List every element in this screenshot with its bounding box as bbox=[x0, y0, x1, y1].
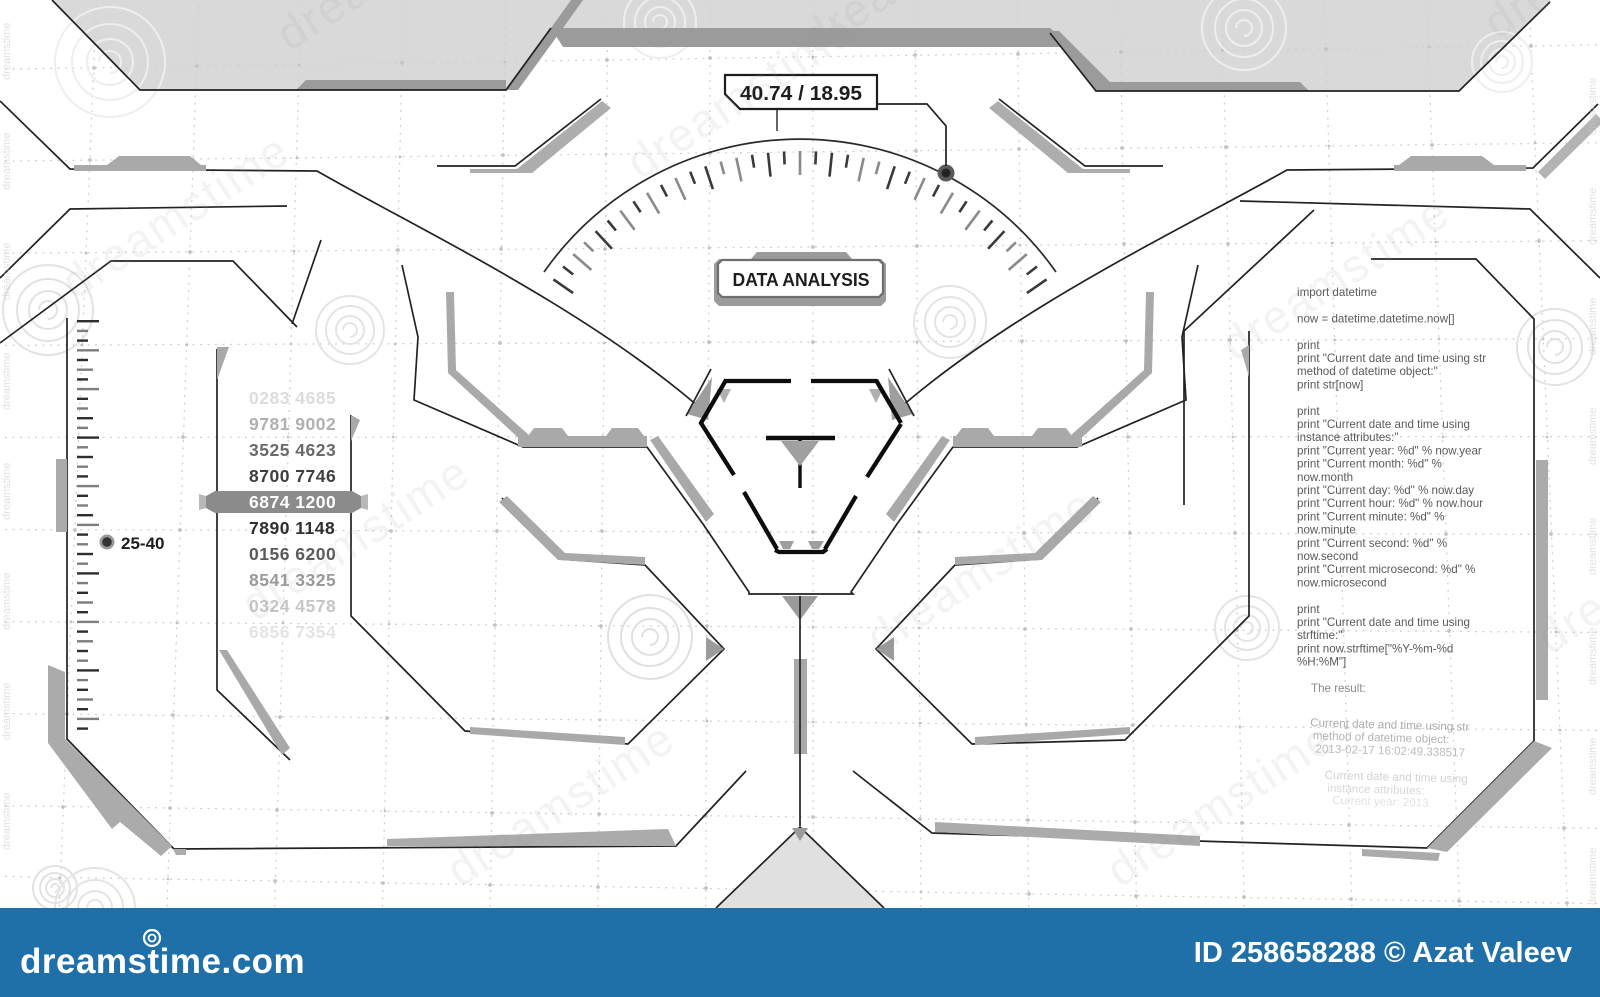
svg-text:print "Current day: %d" % now.: print "Current day: %d" % now.day bbox=[1297, 484, 1474, 497]
svg-text:print str[now]: print str[now] bbox=[1297, 378, 1363, 391]
svg-text:dreamstime: dreamstime bbox=[1, 353, 13, 410]
svg-text:now.microsecond: now.microsecond bbox=[1297, 576, 1387, 589]
svg-text:dreamstime: dreamstime bbox=[1, 243, 13, 300]
svg-text:print "Current minute: %d" %: print "Current minute: %d" % bbox=[1297, 510, 1444, 523]
svg-text:dreamstime: dreamstime bbox=[1587, 848, 1599, 905]
svg-text:print: print bbox=[1297, 339, 1320, 352]
svg-text:now.month: now.month bbox=[1297, 471, 1353, 484]
svg-text:print "Current date and time u: print "Current date and time using str bbox=[1297, 352, 1486, 365]
svg-text:strftime:": strftime:" bbox=[1297, 629, 1342, 642]
svg-text:dreamstime: dreamstime bbox=[1, 463, 13, 520]
svg-text:print: print bbox=[1297, 405, 1320, 418]
svg-text:6874 1200: 6874 1200 bbox=[249, 492, 336, 512]
svg-text:dreamstime: dreamstime bbox=[1, 793, 13, 850]
svg-text:dreamstime: dreamstime bbox=[1587, 518, 1599, 575]
svg-text:print "Current year: %d" % now: print "Current year: %d" % now.year bbox=[1297, 444, 1482, 457]
svg-text:DATA ANALYSIS: DATA ANALYSIS bbox=[733, 270, 870, 290]
svg-text:dreamstime: dreamstime bbox=[1587, 628, 1599, 685]
svg-text:dreamstime: dreamstime bbox=[1587, 78, 1599, 135]
svg-text:instance attributes:": instance attributes:" bbox=[1297, 431, 1398, 444]
svg-text:print "Current date and time u: print "Current date and time using bbox=[1297, 418, 1470, 431]
svg-text:print: print bbox=[1297, 603, 1320, 616]
svg-text:9781 9002: 9781 9002 bbox=[249, 414, 336, 434]
svg-text:dreamstime: dreamstime bbox=[1587, 188, 1599, 245]
svg-text:dreamstime: dreamstime bbox=[1587, 408, 1599, 465]
svg-text:dreamstime: dreamstime bbox=[1, 683, 13, 740]
svg-text:Current year: 2013: Current year: 2013 bbox=[1332, 794, 1429, 810]
svg-text:8700 7746: 8700 7746 bbox=[249, 466, 336, 486]
svg-text:print "Current date and time u: print "Current date and time using bbox=[1297, 616, 1470, 629]
svg-text:print "Current hour: %d" % now: print "Current hour: %d" % now.hour bbox=[1297, 497, 1483, 510]
svg-text:dreamstime: dreamstime bbox=[1, 133, 13, 190]
svg-text:dreamstime: dreamstime bbox=[1, 23, 13, 80]
svg-text:print "Current second: %d" %: print "Current second: %d" % bbox=[1297, 537, 1447, 550]
svg-text:method of datetime object:": method of datetime object:" bbox=[1297, 365, 1438, 378]
svg-text:The result:: The result: bbox=[1311, 682, 1366, 695]
svg-text:ID 258658288 © Azat Valeev: ID 258658288 © Azat Valeev bbox=[1194, 937, 1572, 969]
svg-text:now.second: now.second bbox=[1297, 550, 1358, 563]
svg-text:25-40: 25-40 bbox=[121, 534, 164, 553]
svg-text:now.minute: now.minute bbox=[1297, 524, 1356, 537]
svg-text:dreamstime.com: dreamstime.com bbox=[20, 942, 305, 981]
svg-text:print "Current month: %d" %: print "Current month: %d" % bbox=[1297, 458, 1442, 471]
svg-text:3525 4623: 3525 4623 bbox=[249, 440, 336, 460]
svg-text:%H:%M"]: %H:%M"] bbox=[1297, 656, 1346, 669]
svg-text:print now.strftime["%Y-%m-%d: print now.strftime["%Y-%m-%d bbox=[1297, 642, 1453, 655]
svg-text:0283 4685: 0283 4685 bbox=[249, 388, 336, 408]
svg-text:print "Current microsecond: %d: print "Current microsecond: %d" % bbox=[1297, 563, 1475, 576]
svg-text:dreamstime: dreamstime bbox=[1587, 298, 1599, 355]
svg-text:dreamstime: dreamstime bbox=[1, 573, 13, 630]
svg-text:dreamstime: dreamstime bbox=[1587, 738, 1599, 795]
